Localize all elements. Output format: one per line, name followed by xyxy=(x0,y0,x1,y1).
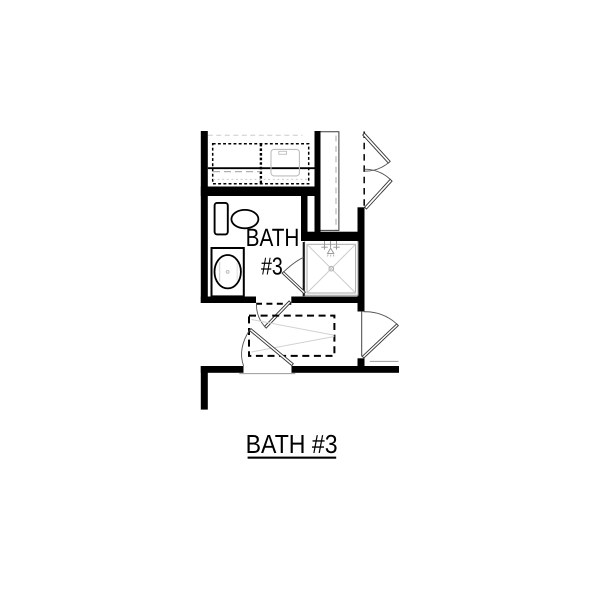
svg-text:#3: #3 xyxy=(261,253,283,280)
svg-text:BATH #3: BATH #3 xyxy=(246,429,338,459)
svg-text:BATH: BATH xyxy=(246,224,300,252)
